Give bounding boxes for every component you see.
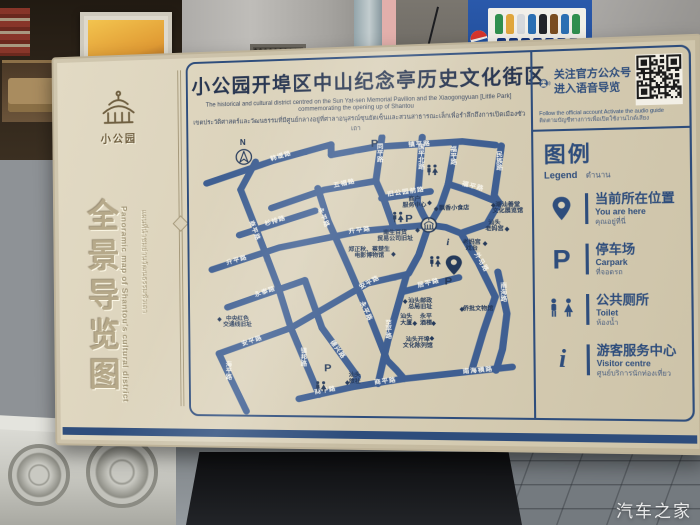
poi-label: 老妈宫戏台 [461,238,481,252]
map-toilet-icon [393,212,404,223]
road-海平路 [219,354,246,412]
legend-title-thai: ตำนาน [586,169,611,182]
poi-label: 郑正秋、蔡楚生电影博物馆 [348,245,390,259]
poi-diamond-marker [427,200,432,205]
road [431,184,448,221]
map-info-icon: i [446,237,449,248]
road-label: 德兴路 [328,339,347,361]
legend-item-carpark: P 停车场 Carpark ที่จอดรถ [534,232,691,284]
map-pavilion-icon [421,218,436,232]
road-label: 安平路 [358,274,382,291]
street-photo-scene: 4006999517 小公园 全景导览图 Panoramic ma [0,0,700,525]
legend-title-english: Legend [544,170,578,181]
pavilion-logo-icon [98,89,139,129]
legend-divider [585,193,588,224]
audio-guide-section: 关注官方公众号 进入语音导览 Follow the official accou… [532,47,689,133]
carved-medallion [86,436,158,508]
map-parking-icon: P [405,213,413,225]
legend-label-cn: 当前所在位置 [595,187,675,208]
legend-divider [586,294,589,325]
legend-item-toilet: 公共厕所 Toilet ห้องน้ำ [535,284,692,335]
map-you-are-here-pin-icon [446,255,462,275]
road-label: 南海横路 [462,365,493,376]
map-parking-icon: P [444,276,452,288]
map-parking-icon: P [371,138,379,150]
info-icon: i [546,347,580,373]
svg-text:N: N [240,138,246,147]
bottle [506,14,514,34]
svg-text:P: P [371,138,379,150]
svg-text:P: P [405,213,413,225]
legend-label-en: Carpark [596,258,636,268]
legend-label-cn: 公共厕所 [596,289,649,309]
bottle [572,14,580,34]
poi-label: 潮汕善堂文化展览馆 [491,200,523,215]
poi-diamond-marker [217,317,222,322]
poi-diamond-marker [430,336,435,341]
legend-label-th: คุณอยู่ที่นี่ [595,216,675,228]
road-label: 镇邦路 [301,347,308,368]
map-sign-board: 小公园 全景导览图 Panoramic map of Shantou's cul… [52,34,700,456]
sign-left-panel: 小公园 全景导览图 Panoramic map of Shantou's cul… [61,63,180,412]
poi-diamond-marker [483,241,488,246]
panel-title-vertical: 全景导览图 [77,198,124,397]
legend-label-en: Toilet [596,309,649,318]
legend-label-en: Visitor centre [597,359,677,369]
street-map-svg: 韩堤路镇平路同平路国平北路福平路福平路民族路五福路杉排路旧公园前路商平路永平路永… [188,131,534,418]
brand-label: 小公园 [61,129,177,147]
road-label: 南海路 [500,282,508,303]
road-label: 福平路 [449,145,458,166]
road-label: 海平路 [226,361,233,382]
bottle-row [492,14,582,34]
bottle [517,14,525,34]
legend-label-th: ที่จอดรถ [596,267,636,279]
map-north-compass-icon: N [236,138,252,165]
poi-label: 永平酒楼 [419,312,433,326]
photo-watermark: 汽车之家 [616,497,692,522]
svg-text:P: P [324,362,331,374]
sign-bottom-stripe [63,427,698,444]
you-are-here-pin-icon [544,196,578,222]
road [376,181,393,226]
bottle [539,14,547,34]
qr-code [635,53,683,105]
title-block: 小公园开埠区中山纪念亭历史文化街区 The historical and cul… [188,52,532,139]
sign-pedestal [186,452,522,525]
poi-diamond-marker [412,321,417,326]
map-parking-icon: P [324,362,331,374]
poi-label: 侨批文物馆 [462,304,494,312]
legend-item-you-are-here: 当前所在位置 You are here คุณอยู่ที่นี่ [534,181,691,234]
svg-text:i: i [446,237,449,248]
legend-column: 关注官方公众号 进入语音导览 Follow the official accou… [530,47,692,420]
poi-label: 汕头旅社 [348,371,361,385]
road-label: 永平路 [358,299,375,322]
legend-item-visitor-centre: i 游客服务中心 Visitor centre ศูนย์บริการนักท่… [535,335,692,386]
legend-divider [587,344,590,375]
panel-title-english: Panoramic map of Shantou's cultural dist… [119,206,130,406]
map-toilet-icon [427,164,438,175]
bottle [528,14,536,34]
road-label: 安平路 [240,334,263,348]
road [278,286,291,328]
toilet-icon [545,298,579,322]
legend-title: 图例 [544,136,680,170]
map-toilet-icon [430,256,441,267]
legend-label-cn: 停车场 [595,238,635,258]
parking-icon: P [545,246,579,273]
sign-board-surface: 小公园 全景导览图 Panoramic map of Shantou's cul… [52,34,700,456]
road-label: 国平北路 [418,143,426,171]
sign-content-frame: 小公园开埠区中山纪念亭历史文化街区 The historical and cul… [186,44,695,421]
legend-label-th: ห้องน้ำ [596,318,649,329]
legend-divider [585,243,588,274]
poi-label: 汕头大厦 [400,312,413,326]
title-and-map-column: 小公园开埠区中山纪念亭历史文化街区 The historical and cul… [188,52,535,418]
poi-diamond-marker [505,227,510,232]
legend-label-th: ศูนย์บริการนักท่องเที่ยว [597,369,677,381]
shop-goods [0,8,30,56]
bottle [495,14,503,34]
poi-label: 汕头邮政总局旧址 [408,296,433,310]
carved-medallion [8,444,70,506]
road-韩堤路 [206,145,331,184]
bottle [550,14,558,34]
street-map: 韩堤路镇平路同平路国平北路福平路福平路民族路五福路杉排路旧公园前路商平路永平路永… [188,131,534,418]
road-label: 民族路 [496,150,504,171]
road-label: 至平路 [385,319,393,340]
bottle [561,14,569,34]
audio-guide-icon [539,68,550,97]
legend-header: 图例 Legend ตำนาน [533,128,690,184]
panel-title-thai: แผนที่นำชมย่านวัฒนธรรมซัวเถา [138,209,151,403]
legend-label-cn: 游客服务中心 [596,340,676,360]
poi-diamond-marker [403,299,408,304]
qr-caption-line2: 进入语音导览 [554,80,631,96]
poi-label: 汕头开埠文化陈列馆 [402,335,434,349]
poi-label: 中央红色交通线旧址 [223,314,252,328]
poi-diamond-marker [391,252,396,257]
svg-text:P: P [444,276,452,288]
